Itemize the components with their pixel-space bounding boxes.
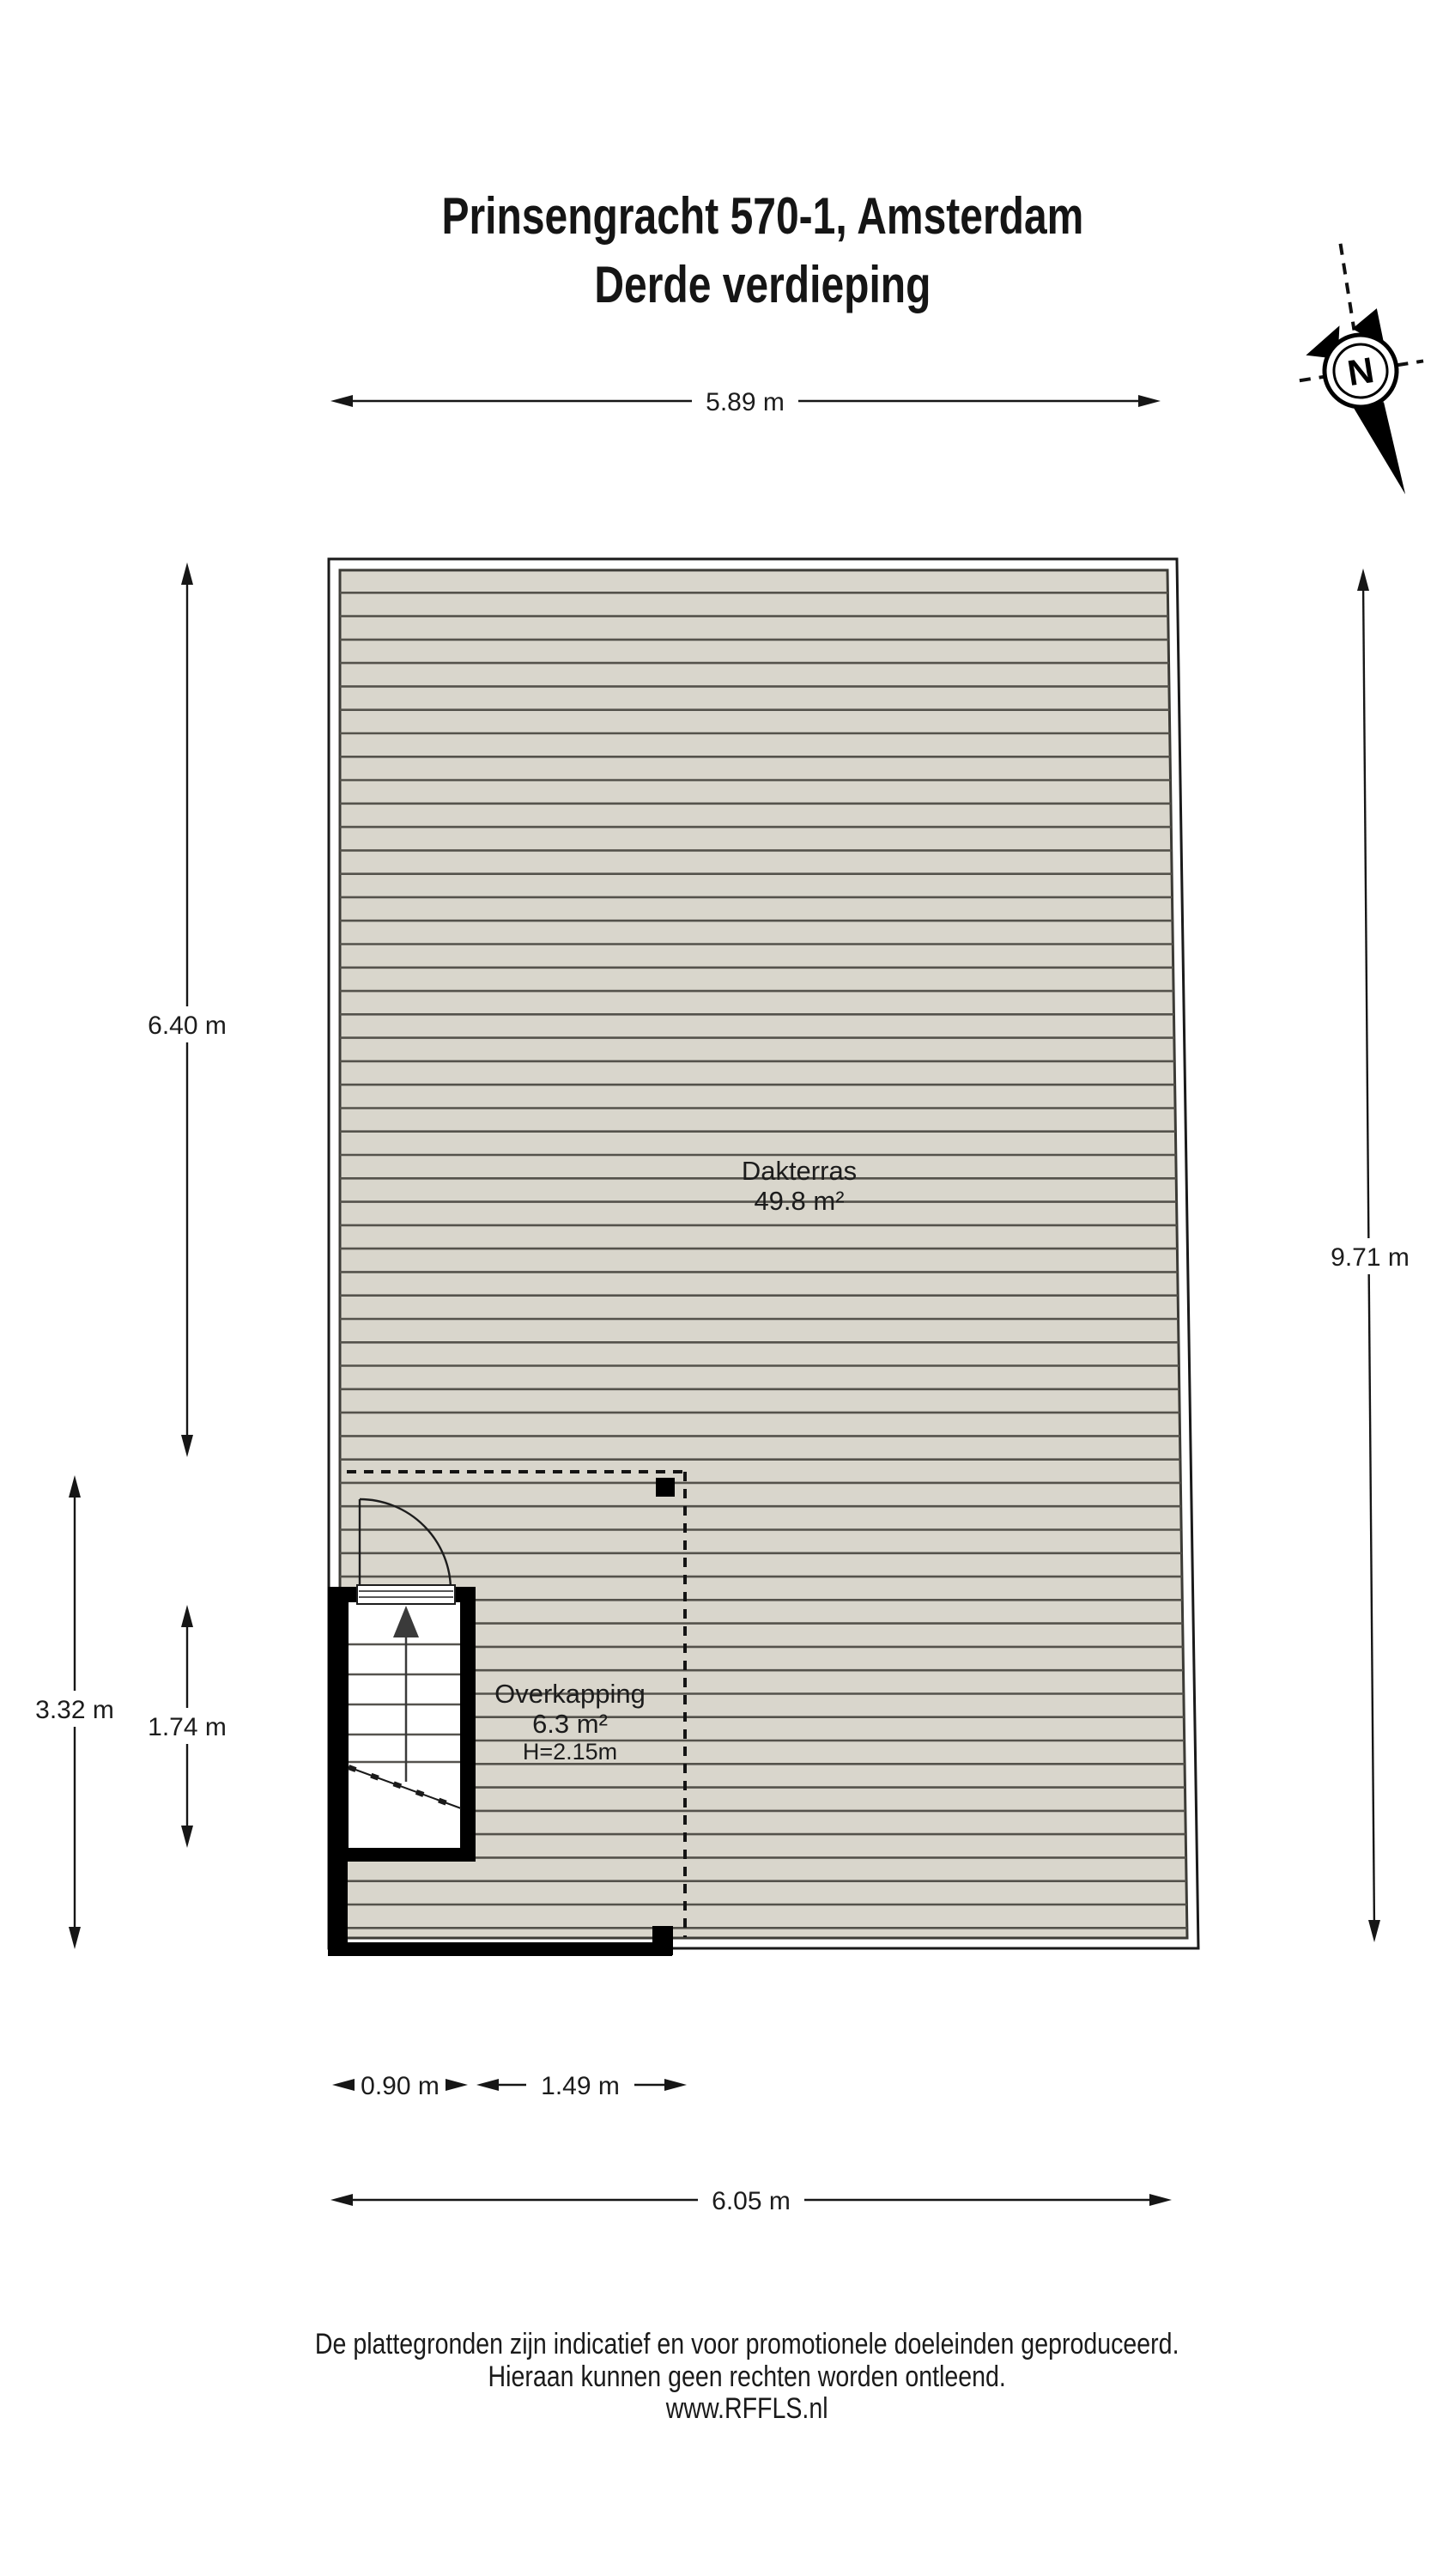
- dimension-bottom-width-label: 6.05 m: [712, 2187, 791, 2215]
- overkapping-post-top: [656, 1478, 675, 1497]
- north-compass-icon: N: [1279, 234, 1443, 507]
- dimension-left-upper-label: 6.40 m: [148, 1012, 227, 1040]
- dimension-right-height: 9.71 m: [1313, 568, 1427, 1942]
- dakterras-area: 49.8 m²: [754, 1186, 844, 1216]
- dimension-stair-width: 0.90 m: [332, 2072, 468, 2100]
- dimension-stair-height: 1.74 m: [130, 1605, 244, 1848]
- overkapping-label: Overkapping: [494, 1679, 646, 1709]
- disclaimer: De plattegronden zijn indicatief en voor…: [45, 2329, 1449, 2426]
- dimension-stair-width-label: 0.90 m: [361, 2072, 440, 2100]
- dimension-overkapping-width-label: 1.49 m: [541, 2072, 620, 2100]
- dimension-top-width: 5.89 m: [330, 383, 1161, 419]
- door-sill: [357, 1585, 455, 1604]
- dimension-top-width-label: 5.89 m: [706, 388, 785, 416]
- dakterras-label: Dakterras: [742, 1156, 857, 1186]
- dimension-left-lower-label: 3.32 m: [35, 1696, 114, 1724]
- floorplan-page: Prinsengracht 570-1, Amsterdam Derde ver…: [0, 0, 1449, 2576]
- left-wall-lower: [328, 1862, 348, 1956]
- overkapping-area: 6.3 m²: [532, 1709, 608, 1739]
- website-url: www.RFFLS.nl: [315, 2393, 1179, 2426]
- disclaimer-line1: De plattegronden zijn indicatief en voor…: [315, 2329, 1179, 2361]
- dimension-right-height-label: 9.71 m: [1331, 1243, 1410, 1272]
- disclaimer-line2: Hieraan kunnen geen rechten worden ontle…: [315, 2361, 1179, 2394]
- dimension-stair-height-label: 1.74 m: [148, 1713, 227, 1741]
- dimension-overkapping-width: 1.49 m: [476, 2068, 687, 2100]
- dimension-left-lower: 3.32 m: [18, 1475, 131, 1949]
- dimension-left-upper: 6.40 m: [130, 562, 244, 1457]
- bottom-wall: [328, 1942, 672, 1956]
- overkapping-height: H=2.15m: [523, 1739, 617, 1765]
- floorplan-drawing: Dakterras 49.8 m² Overkapping 6.3 m² H=2…: [0, 0, 1449, 2576]
- dimension-bottom-width: 6.05 m: [330, 2182, 1172, 2218]
- stair-well: [349, 1602, 460, 1848]
- staircase: [328, 1585, 476, 1862]
